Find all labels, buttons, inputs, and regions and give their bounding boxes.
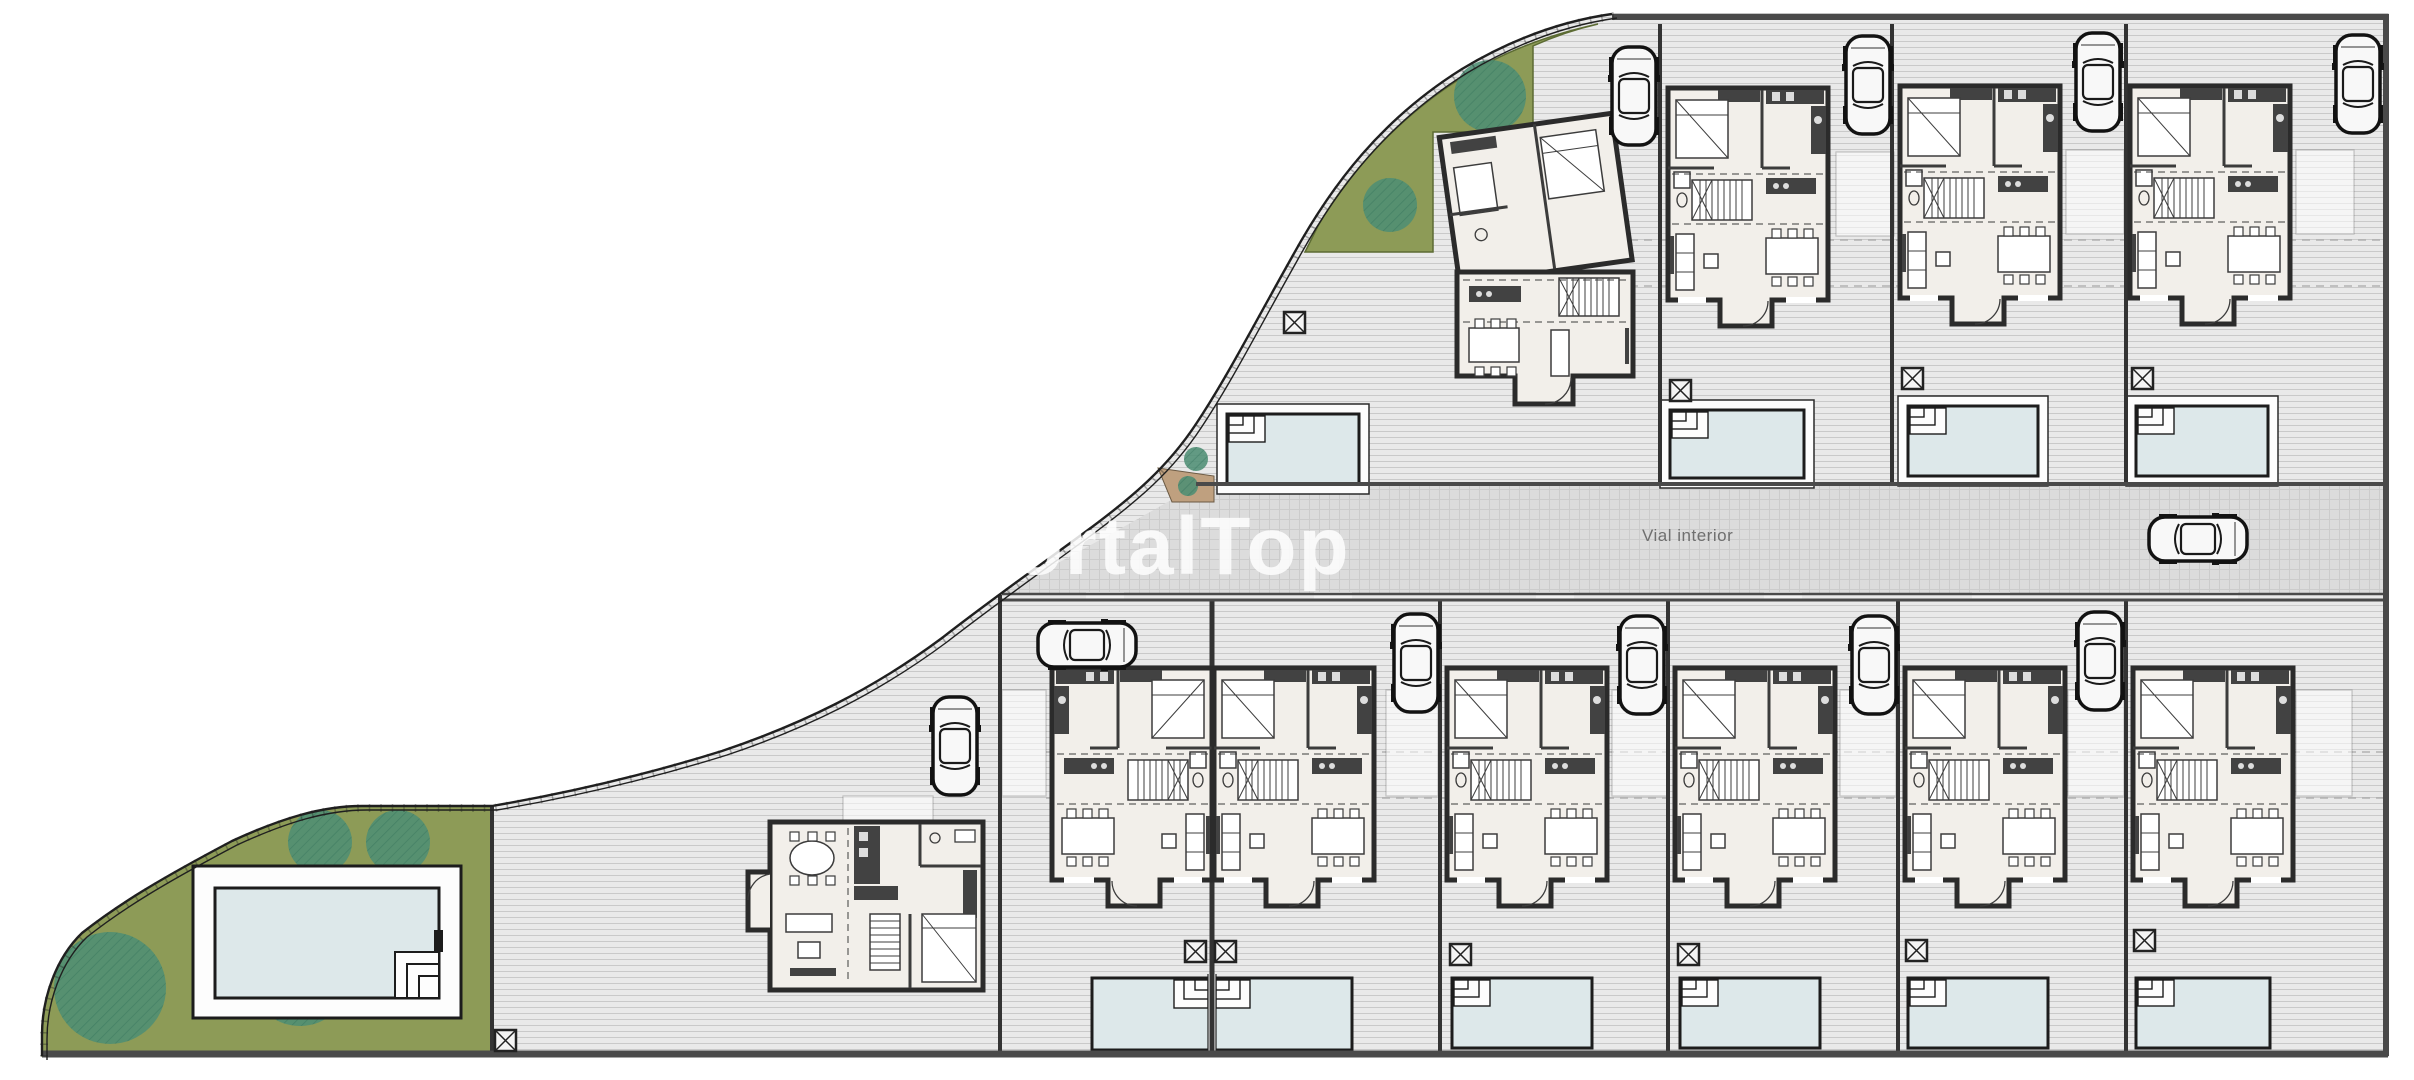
pool-pair	[1092, 974, 1352, 1054]
house-unit-villa-7	[1214, 668, 1374, 906]
tree-icon	[1178, 476, 1198, 496]
site-plan-svg: Vial interior PortalTop	[0, 0, 2414, 1080]
utility-box-icon	[2134, 930, 2155, 951]
pool-top-2	[1660, 400, 1814, 488]
pool-b-2	[1680, 978, 1820, 1048]
house-unit-villa-6	[1052, 668, 1212, 906]
house-unit-villa-5	[748, 822, 983, 990]
car-icon	[1608, 47, 1660, 145]
utility-box-icon	[1902, 368, 1923, 389]
pool-ladder	[434, 930, 443, 952]
house-unit-villa-2	[1668, 88, 1828, 326]
car-icon	[2149, 513, 2247, 565]
tree-icon	[54, 932, 166, 1044]
house-unit-villa-8	[1447, 668, 1607, 906]
car-icon	[1848, 616, 1900, 714]
terrace-pad	[2296, 150, 2354, 234]
car-icon	[1038, 619, 1136, 671]
house-unit-villa-4	[2130, 86, 2290, 324]
utility-box-icon	[2132, 368, 2153, 389]
pool-b-1	[1452, 978, 1592, 1048]
tree-icon	[366, 810, 430, 874]
site-plan-page: Vial interior PortalTop	[0, 0, 2414, 1080]
tree-icon	[288, 810, 352, 874]
terrace-pad	[843, 796, 933, 822]
watermark-text: PortalTop	[956, 501, 1351, 592]
car-icon	[1390, 614, 1442, 712]
terrace-pad	[1836, 152, 1894, 236]
car-icon	[2332, 35, 2384, 133]
utility-box-icon	[1215, 941, 1236, 962]
pool-b-4	[2136, 978, 2270, 1048]
house-unit-villa-11	[2133, 668, 2293, 906]
house-unit-villa-9	[1675, 668, 1835, 906]
terrace-pad	[1002, 690, 1046, 796]
car-icon	[1842, 36, 1894, 134]
utility-box-icon	[1185, 941, 1206, 962]
utility-box-icon	[1284, 312, 1305, 333]
house-unit-villa-10	[1905, 668, 2065, 906]
pool-b-3	[1908, 978, 2048, 1048]
villa-upper-wing	[1439, 113, 1632, 284]
pool-top-3	[1898, 396, 2048, 486]
tree-icon	[1363, 178, 1417, 232]
utility-box-icon	[1670, 380, 1691, 401]
car-icon	[2074, 612, 2126, 710]
car-icon	[1616, 616, 1668, 714]
utility-box-icon	[1678, 944, 1699, 965]
house-unit-villa-1	[1439, 113, 1633, 404]
utility-box-icon	[495, 1030, 516, 1051]
utility-box-icon	[1450, 944, 1471, 965]
terrace-pad	[2066, 150, 2124, 234]
car-icon	[929, 697, 981, 795]
tree-icon	[1184, 447, 1208, 471]
terrace-pad	[2296, 690, 2352, 796]
tree-icon	[1454, 60, 1526, 132]
house-unit-villa-3	[1900, 86, 2060, 324]
communal-pool	[193, 866, 461, 1018]
car-icon	[2072, 33, 2124, 131]
road-label: Vial interior	[1642, 526, 1733, 545]
pool-top-4	[2126, 396, 2278, 486]
pool-top-1	[1217, 404, 1369, 494]
utility-box-icon	[1906, 940, 1927, 961]
